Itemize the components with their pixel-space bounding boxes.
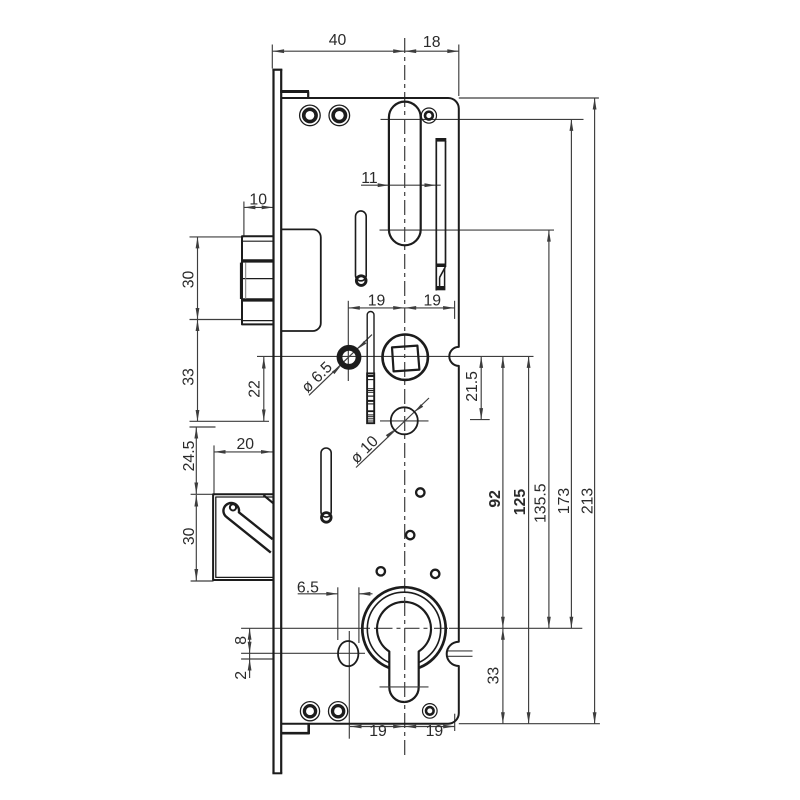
svg-text:20: 20 — [237, 436, 255, 453]
svg-text:10: 10 — [249, 191, 267, 208]
svg-text:24.5: 24.5 — [181, 440, 198, 471]
svg-text:30: 30 — [181, 527, 198, 545]
svg-text:92: 92 — [487, 490, 504, 508]
svg-text:33: 33 — [180, 368, 197, 386]
svg-text:8: 8 — [233, 636, 250, 645]
svg-text:30: 30 — [180, 271, 197, 289]
svg-text:18: 18 — [423, 34, 441, 51]
svg-text:19: 19 — [368, 293, 386, 310]
svg-text:213: 213 — [580, 488, 597, 515]
svg-text:40: 40 — [329, 32, 347, 49]
svg-text:33: 33 — [486, 667, 503, 685]
svg-text:6.5: 6.5 — [297, 579, 319, 596]
svg-text:19: 19 — [424, 293, 442, 310]
svg-text:135.5: 135.5 — [533, 483, 550, 523]
svg-text:11: 11 — [361, 170, 378, 187]
svg-text:2: 2 — [233, 671, 250, 680]
svg-text:125: 125 — [512, 489, 529, 516]
svg-text:ø 6.5: ø 6.5 — [298, 359, 336, 397]
svg-text:22: 22 — [247, 380, 264, 398]
svg-text:21.5: 21.5 — [464, 371, 481, 402]
svg-text:173: 173 — [556, 488, 573, 515]
svg-text:19: 19 — [369, 723, 387, 740]
svg-text:19: 19 — [426, 723, 444, 740]
svg-text:ø 10: ø 10 — [348, 433, 383, 468]
